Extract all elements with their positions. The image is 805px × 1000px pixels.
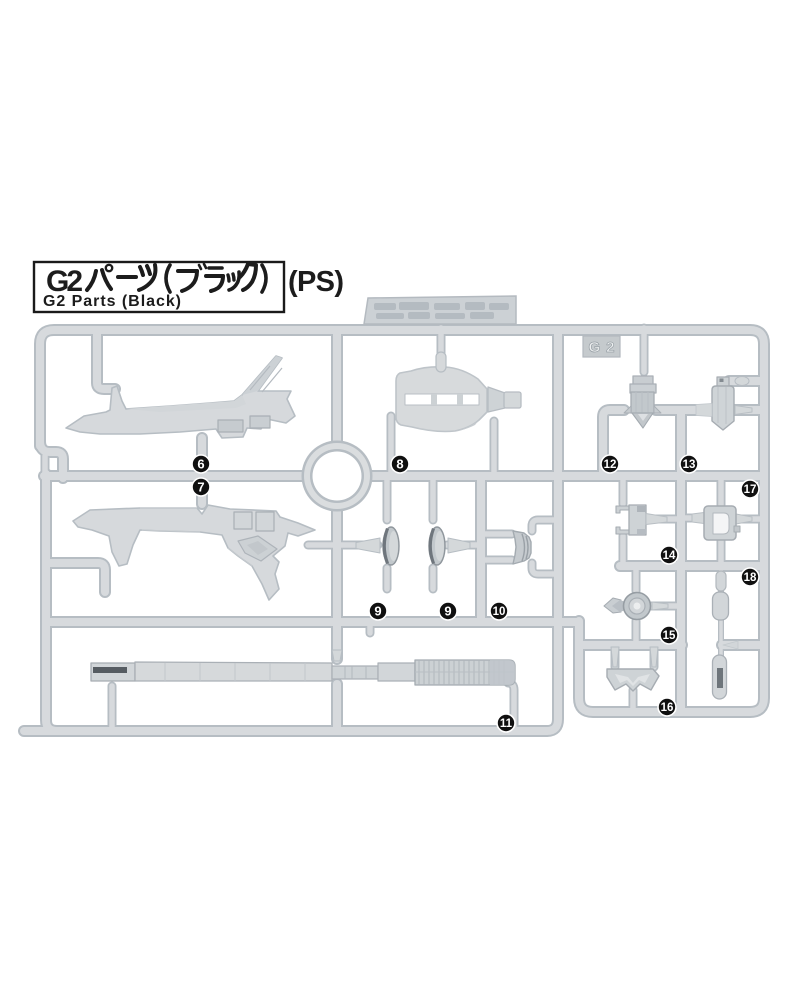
- svg-text:11: 11: [500, 718, 513, 730]
- svg-text:(PS): (PS): [288, 266, 344, 298]
- svg-text:8: 8: [396, 457, 403, 472]
- svg-text:15: 15: [663, 630, 676, 642]
- svg-text:7: 7: [197, 480, 204, 495]
- svg-text:18: 18: [744, 572, 757, 584]
- svg-text:G2 Parts (Black): G2 Parts (Black): [43, 293, 181, 310]
- svg-text:9: 9: [374, 604, 381, 619]
- svg-text:17: 17: [744, 484, 757, 496]
- svg-text:6: 6: [197, 457, 204, 472]
- svg-text:16: 16: [661, 702, 674, 714]
- svg-text:13: 13: [683, 459, 696, 471]
- svg-text:14: 14: [663, 550, 676, 562]
- svg-text:10: 10: [493, 606, 506, 618]
- svg-text:12: 12: [604, 459, 617, 471]
- svg-text:9: 9: [444, 604, 451, 619]
